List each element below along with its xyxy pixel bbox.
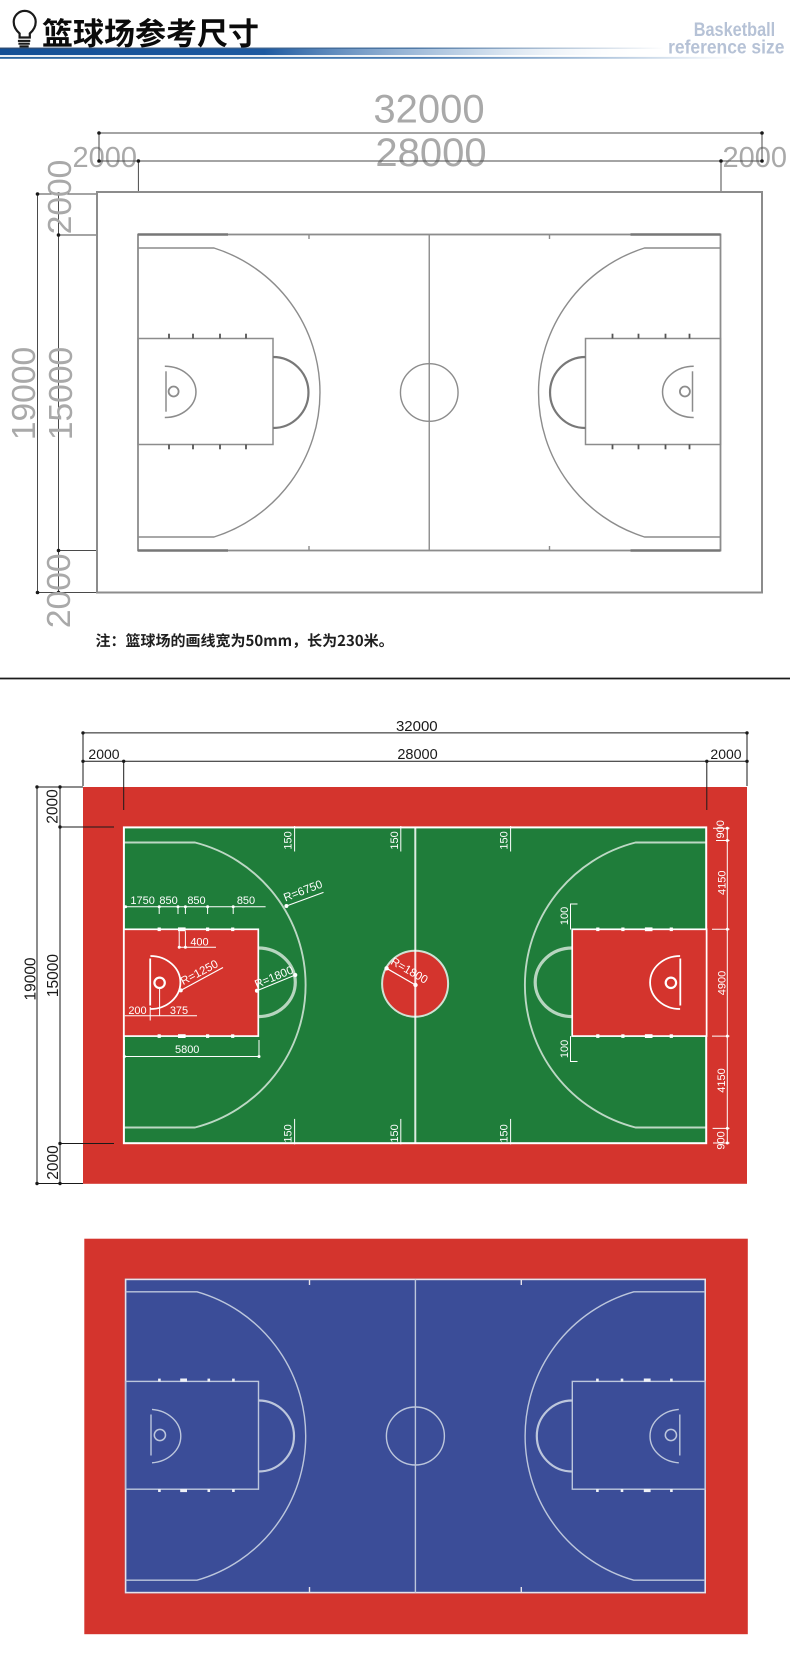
- svg-text:2000: 2000: [45, 1145, 62, 1180]
- svg-text:900: 900: [715, 1131, 727, 1149]
- svg-text:2000: 2000: [72, 142, 137, 174]
- svg-text:19000: 19000: [6, 347, 43, 440]
- svg-text:100: 100: [559, 907, 571, 925]
- svg-text:150: 150: [499, 1124, 511, 1142]
- svg-text:19000: 19000: [23, 957, 40, 1000]
- svg-text:850: 850: [159, 895, 177, 907]
- svg-text:1750: 1750: [130, 895, 154, 907]
- svg-text:28000: 28000: [397, 747, 437, 763]
- svg-text:32000: 32000: [373, 88, 484, 132]
- svg-text:150: 150: [283, 1124, 295, 1142]
- svg-text:15000: 15000: [45, 954, 62, 997]
- svg-text:850: 850: [187, 895, 205, 907]
- svg-text:100: 100: [559, 1040, 571, 1058]
- svg-text:reference size: reference size: [668, 36, 784, 58]
- svg-text:2000: 2000: [41, 554, 78, 629]
- svg-text:150: 150: [499, 831, 511, 849]
- svg-text:2000: 2000: [88, 746, 119, 762]
- svg-text:400: 400: [190, 936, 208, 948]
- svg-text:2000: 2000: [710, 746, 741, 762]
- svg-text:5800: 5800: [175, 1044, 199, 1056]
- svg-text:850: 850: [237, 895, 255, 907]
- svg-text:4900: 4900: [716, 971, 728, 995]
- svg-text:2000: 2000: [42, 160, 79, 235]
- svg-text:4150: 4150: [716, 1068, 728, 1092]
- svg-text:15000: 15000: [43, 347, 80, 440]
- svg-text:4150: 4150: [717, 871, 729, 895]
- svg-text:2000: 2000: [45, 789, 62, 824]
- svg-text:150: 150: [283, 831, 295, 849]
- svg-text:900: 900: [715, 820, 727, 838]
- svg-text:2000: 2000: [722, 142, 787, 174]
- svg-text:150: 150: [389, 1124, 401, 1142]
- svg-text:150: 150: [389, 831, 401, 849]
- svg-text:28000: 28000: [375, 131, 486, 175]
